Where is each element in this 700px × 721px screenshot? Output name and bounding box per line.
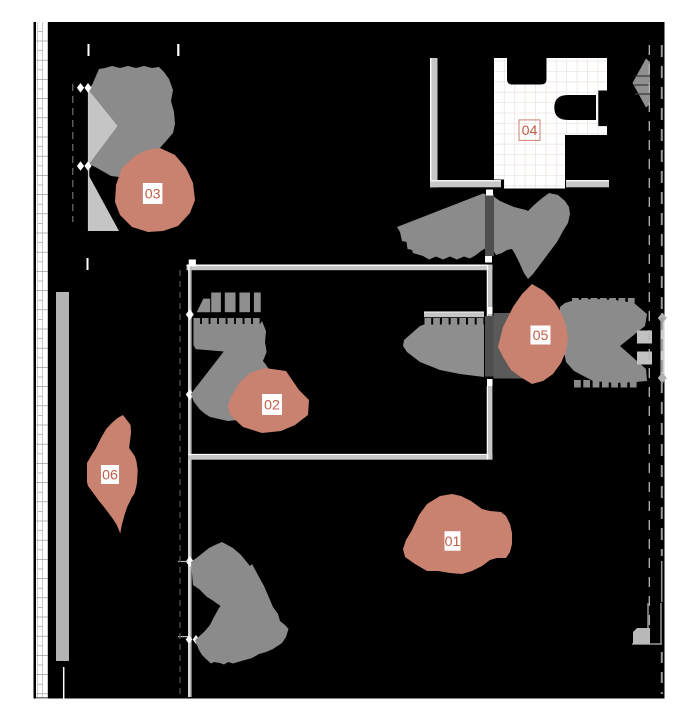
svg-text:05: 05 xyxy=(533,328,549,344)
svg-text:02: 02 xyxy=(264,398,280,414)
svg-text:03: 03 xyxy=(145,187,161,203)
svg-text:01: 01 xyxy=(445,534,461,550)
svg-text:06: 06 xyxy=(102,468,118,484)
svg-text:04: 04 xyxy=(522,123,538,139)
